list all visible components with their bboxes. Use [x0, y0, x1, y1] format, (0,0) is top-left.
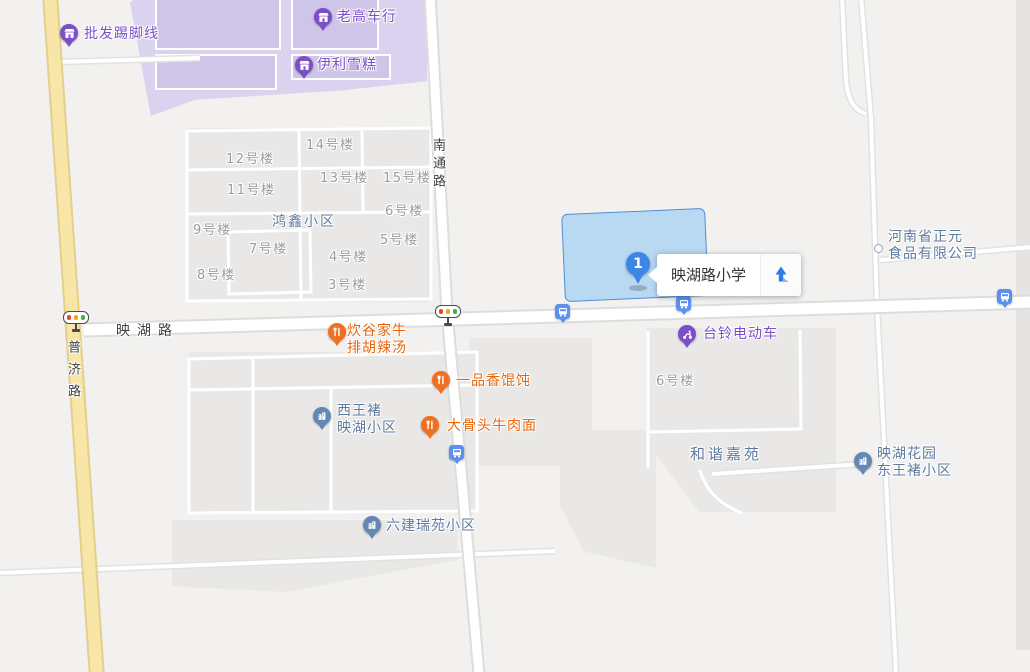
- building-label: 4号楼: [329, 246, 368, 265]
- building-icon: [363, 516, 381, 534]
- poi-label-chuigujia[interactable]: 炊谷家牛 排胡辣汤: [347, 323, 407, 357]
- road-label-yinghu: 映湖路: [116, 320, 179, 340]
- fork-knife-icon: [328, 323, 346, 341]
- building-label: 15号楼: [383, 167, 432, 186]
- storefront-icon: [60, 24, 78, 42]
- block-south-central2: [560, 430, 656, 568]
- poi-dot-zhengyuan-shipin[interactable]: [874, 244, 883, 253]
- poi-label-xiwangchu-yinghu[interactable]: 西王褚 映湖小区: [337, 403, 397, 437]
- block-right-strip: [1016, 0, 1030, 650]
- traffic-light-icon: [435, 305, 461, 318]
- poi-pin-tailing-diandongche[interactable]: [678, 325, 696, 350]
- poi-label-yili-xuegao[interactable]: 伊利雪糕: [317, 57, 377, 74]
- building-label: 6号楼: [656, 370, 695, 389]
- poi-label-tailing-diandongche[interactable]: 台铃电动车: [703, 326, 778, 343]
- purple-building: [157, 56, 275, 88]
- navigate-arrow-icon: [770, 264, 792, 286]
- poi-pin-liujian-ruiyuan[interactable]: [363, 516, 381, 541]
- poi-label-line: 排胡辣汤: [347, 340, 407, 357]
- building-icon: [854, 452, 872, 470]
- marker-number: 1: [626, 252, 650, 276]
- fork-knife-icon: [432, 371, 450, 389]
- selected-place-name: 映湖路小学: [657, 254, 760, 296]
- map-canvas[interactable]: 映湖路 南通路 普济路 鸿鑫小区 和谐嘉苑 14号楼 12号楼 13号楼 15号…: [0, 0, 1030, 672]
- selected-marker-1[interactable]: 1: [626, 252, 650, 290]
- poi-label-line: 河南省正元: [888, 229, 978, 246]
- poi-pin-chuigujia[interactable]: [328, 323, 346, 348]
- block-hexie: [646, 328, 836, 512]
- building-label: 13号楼: [320, 167, 369, 186]
- storefront-icon: [295, 56, 313, 74]
- selected-place-popup[interactable]: 映湖路小学: [657, 254, 801, 296]
- poi-pin-dagutou-niuroumian[interactable]: [421, 416, 439, 441]
- poi-pin-xiwangchu-yinghu[interactable]: [313, 407, 331, 432]
- bus-stop-icon[interactable]: [997, 289, 1012, 304]
- bus-stop-icon[interactable]: [676, 296, 691, 311]
- building-label: 12号楼: [226, 148, 275, 167]
- poi-pin-laogao-chehang[interactable]: [314, 8, 332, 33]
- building-label: 11号楼: [227, 179, 276, 198]
- poi-label-line: 炊谷家牛: [347, 323, 407, 340]
- poi-label-liujian-ruiyuan[interactable]: 六建瑞苑小区: [386, 518, 476, 535]
- district-label-hexie[interactable]: 和谐嘉苑: [690, 443, 762, 464]
- poi-label-line: 映湖小区: [337, 420, 397, 437]
- fork-knife-icon: [421, 416, 439, 434]
- poi-label-zhengyuan-shipin[interactable]: 河南省正元 食品有限公司: [888, 229, 978, 263]
- building-label: 14号楼: [306, 134, 355, 153]
- district-label-hongxin[interactable]: 鸿鑫小区: [272, 211, 336, 231]
- poi-label-line: 映湖花园: [877, 446, 952, 463]
- poi-label-laogao-chehang[interactable]: 老高车行: [337, 9, 397, 26]
- poi-pin-yinghu-huayuan[interactable]: [854, 452, 872, 477]
- poi-label-dagutou-niuroumian[interactable]: 大骨头牛肉面: [447, 418, 537, 435]
- poi-label-line: 东王褚小区: [877, 463, 952, 480]
- poi-label-yinghu-huayuan[interactable]: 映湖花园 东王褚小区: [877, 446, 952, 480]
- poi-label-yipinxiang-huntun[interactable]: 一品香馄饨: [456, 373, 531, 390]
- building-label: 3号楼: [328, 274, 367, 293]
- building-label: 6号楼: [385, 200, 424, 219]
- poi-label-line: 西王褚: [337, 403, 397, 420]
- building-icon: [313, 407, 331, 425]
- scooter-icon: [678, 325, 696, 343]
- building-label: 9号楼: [193, 219, 232, 238]
- road-label-puji: 普济路: [63, 340, 82, 406]
- poi-pin-yipinxiang-huntun[interactable]: [432, 371, 450, 396]
- poi-pin-pifa-tijiaoxian[interactable]: [60, 24, 78, 49]
- poi-pin-yili-xuegao[interactable]: [295, 56, 313, 81]
- poi-label-line: 食品有限公司: [888, 246, 978, 263]
- storefront-icon: [314, 8, 332, 26]
- building-label: 5号楼: [380, 229, 419, 248]
- poi-label-pifa-tijiaoxian[interactable]: 批发踢脚线: [84, 26, 159, 43]
- building-label: 8号楼: [197, 264, 236, 283]
- bus-stop-icon[interactable]: [555, 304, 570, 319]
- directions-button[interactable]: [760, 254, 801, 296]
- purple-building: [157, 0, 279, 48]
- bus-stop-icon[interactable]: [449, 445, 464, 460]
- building-label: 7号楼: [249, 238, 288, 257]
- traffic-light-icon: [63, 311, 89, 324]
